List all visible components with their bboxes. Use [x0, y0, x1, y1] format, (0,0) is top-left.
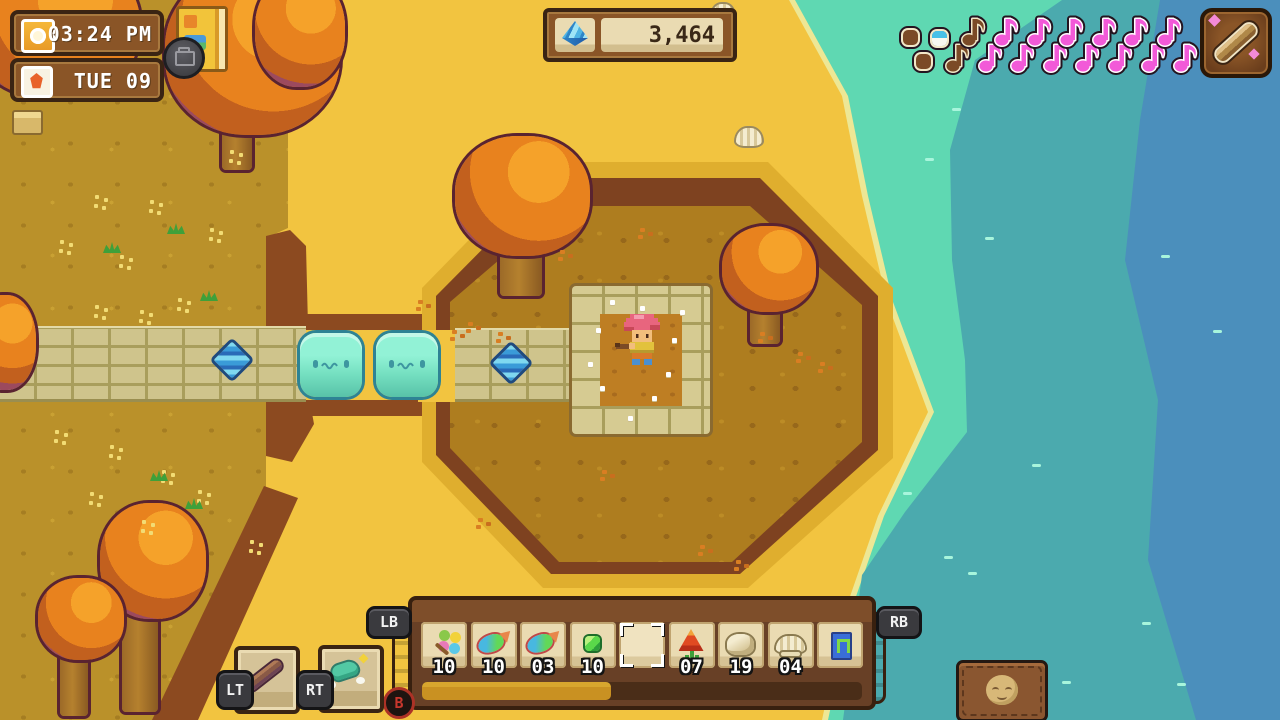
fallen-leaf: [700, 545, 705, 549]
rb-button-hint[interactable]: RB: [876, 606, 922, 639]
fallen-leaf: [560, 250, 565, 254]
hotbar-slot[interactable]: 10: [471, 622, 517, 668]
hotbar-slot[interactable]: 10: [570, 622, 616, 668]
instrument-button[interactable]: [1200, 8, 1272, 78]
hotbar-slot[interactable]: 03: [520, 622, 566, 668]
item-quantity: 07: [669, 658, 715, 677]
progress-fill: [422, 682, 611, 700]
hotbar-slot[interactable]: [817, 622, 863, 668]
music-note-track: [0, 0, 1280, 90]
hotbar-slot[interactable]: 19: [718, 622, 764, 668]
music-dot-played: [903, 30, 918, 45]
lt-button-hint[interactable]: LT: [216, 670, 254, 710]
fallen-leaf: [602, 470, 607, 474]
fallen-leaf: [820, 362, 825, 366]
rt-button-hint[interactable]: RT: [296, 670, 334, 710]
fallen-leaf: [418, 300, 423, 304]
progress-track: [422, 682, 862, 700]
hotbar-slot[interactable]: 10: [421, 622, 467, 668]
fallen-leaf: [798, 352, 803, 356]
sparkle-icon: [1248, 48, 1259, 59]
hotbar-slot[interactable]: 04: [768, 622, 814, 668]
pouch-face-icon: [986, 675, 1018, 705]
music-dot-played: [916, 54, 931, 69]
dash-boots-icon: [330, 659, 359, 681]
fallen-leaf: [760, 332, 765, 336]
item-quantity: 10: [471, 658, 517, 677]
lb-button-hint[interactable]: LB: [366, 606, 412, 639]
music-note-upcoming: [1171, 40, 1201, 76]
fallen-leaf: [498, 332, 503, 336]
companion-pouch-button[interactable]: [956, 660, 1048, 720]
game-screen: 03:24 PM TUE 09 3,464 1010031: [0, 0, 1280, 720]
item-quantity: 10: [570, 658, 616, 677]
item-quantity: 03: [520, 658, 566, 677]
fallen-leaf: [736, 560, 741, 564]
portal-card-icon: [822, 627, 858, 663]
b-button-hint[interactable]: B: [383, 687, 415, 719]
item-quantity: 10: [421, 658, 467, 677]
fallen-leaf: [452, 330, 457, 334]
item-quantity: 04: [768, 658, 814, 677]
fallen-leaf: [640, 228, 645, 232]
hotbar-slot[interactable]: 07: [669, 622, 715, 668]
fallen-leaf: [468, 322, 473, 326]
hotbar-slot-selected[interactable]: [619, 622, 665, 668]
hotbar: 10100310071904: [408, 596, 876, 710]
item-quantity: 19: [718, 658, 764, 677]
fallen-leaf: [478, 518, 483, 522]
sparkle-icon: [1208, 14, 1221, 27]
